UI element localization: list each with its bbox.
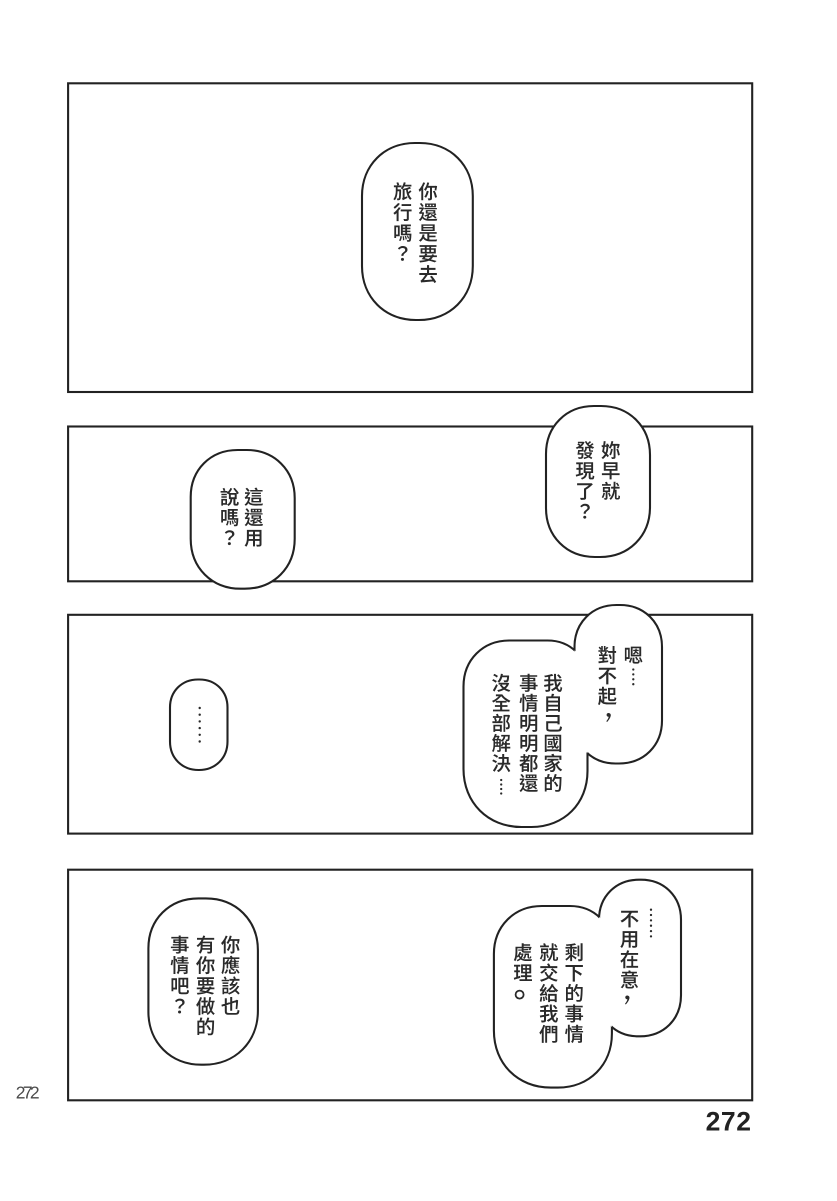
- svg-text:272: 272: [16, 1083, 40, 1103]
- svg-text:272: 272: [706, 1107, 751, 1137]
